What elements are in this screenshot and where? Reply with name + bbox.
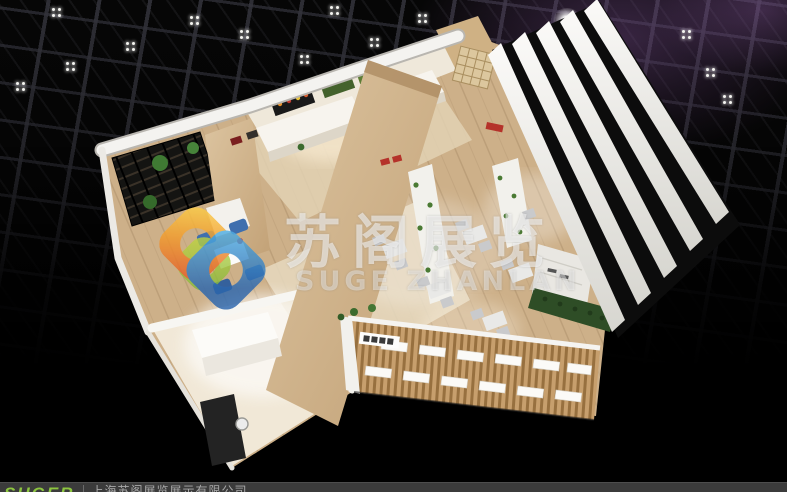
stool (236, 418, 248, 430)
watermark-title: 苏阁展览 (284, 214, 584, 274)
footer-divider (83, 485, 84, 492)
render-canvas: 苏阁展览 SUGE ZHANLAN SUGER 上海苏阁展览展示有限公司 (0, 0, 787, 492)
footer-logo-text: SUGER (4, 485, 74, 492)
watermark-subtitle: SUGE ZHANLAN (295, 266, 581, 297)
footer-bar: SUGER 上海苏阁展览展示有限公司 (0, 482, 787, 492)
footer-company-name: 上海苏阁展览展示有限公司 (91, 485, 247, 492)
